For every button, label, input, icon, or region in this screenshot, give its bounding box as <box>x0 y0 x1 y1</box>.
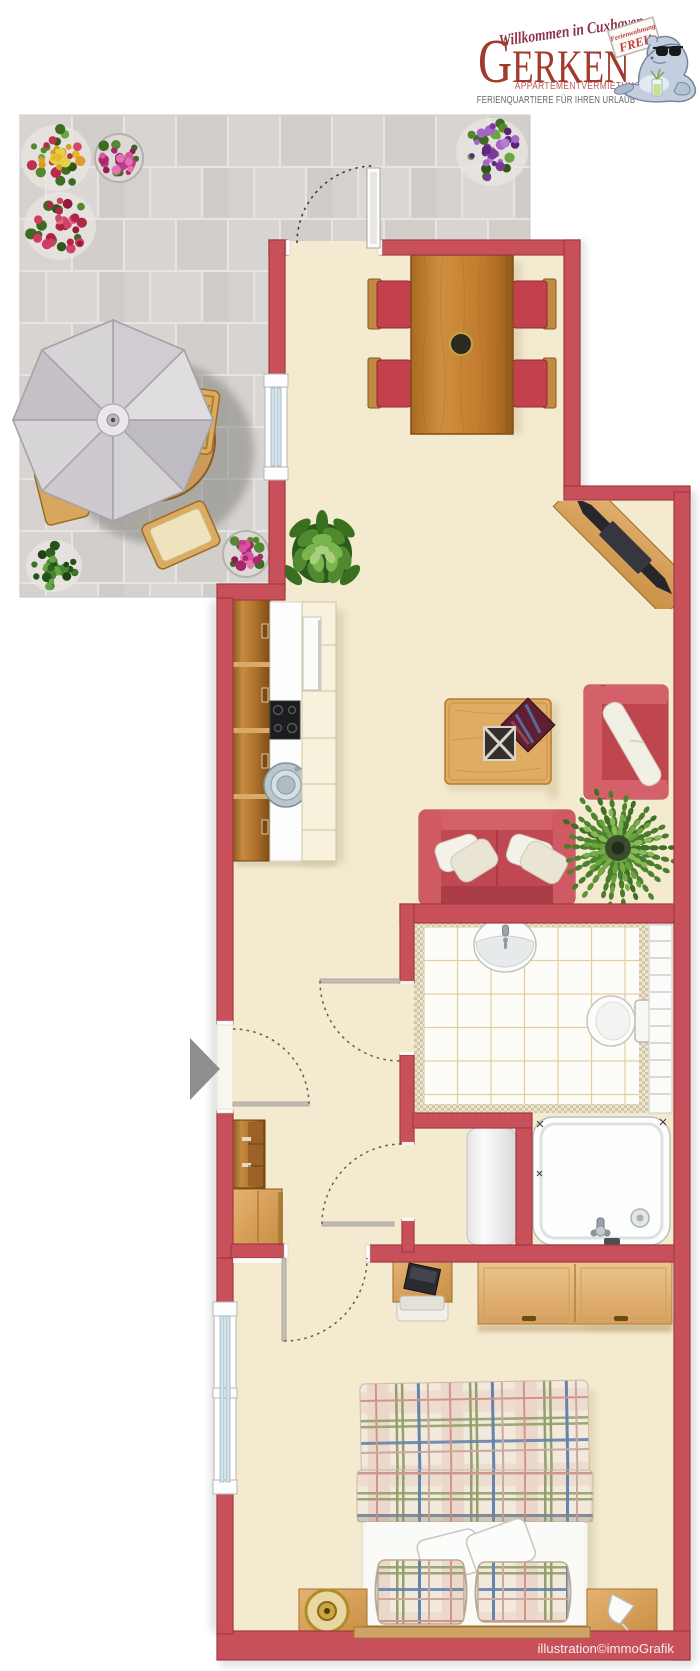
svg-text:illustration©immoGrafik: illustration©immoGrafik <box>538 1641 675 1656</box>
svg-text:FERIENQUARTIERE FÜR IHREN URLA: FERIENQUARTIERE FÜR IHREN URLAUB <box>477 94 635 105</box>
